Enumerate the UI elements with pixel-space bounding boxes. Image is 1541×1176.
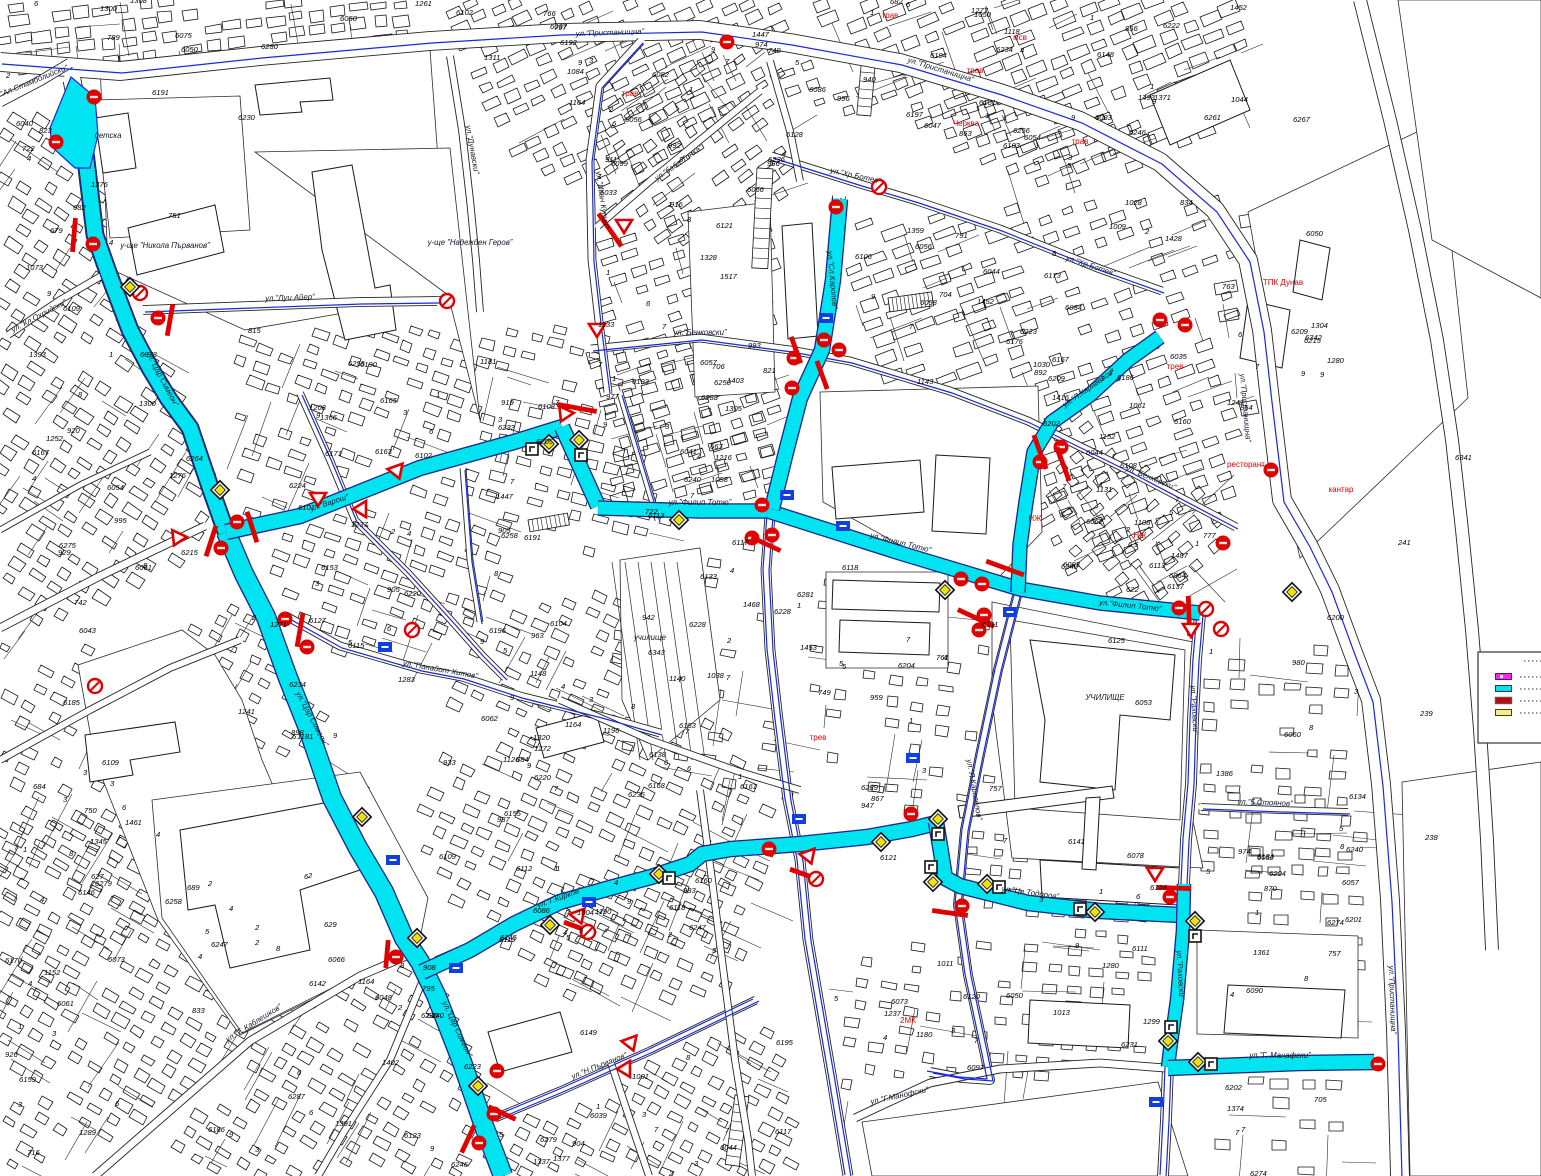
svg-text:6083: 6083 <box>1095 113 1113 122</box>
svg-text:1011: 1011 <box>937 959 953 968</box>
svg-text:6075: 6075 <box>175 31 193 40</box>
svg-text:6082: 6082 <box>652 70 670 79</box>
svg-text:6064: 6064 <box>1169 571 1186 580</box>
svg-text:963: 963 <box>531 631 544 640</box>
svg-text:6084: 6084 <box>1065 303 1082 312</box>
svg-text:4: 4 <box>229 904 233 913</box>
svg-text:1: 1 <box>985 111 989 120</box>
svg-text:977: 977 <box>606 392 619 401</box>
svg-text:6053: 6053 <box>1135 698 1153 707</box>
svg-text:6341: 6341 <box>1455 453 1472 462</box>
svg-text:6173: 6173 <box>1044 271 1062 280</box>
svg-text:6040: 6040 <box>16 119 34 128</box>
svg-text:2: 2 <box>390 527 396 536</box>
svg-text:6037: 6037 <box>550 22 568 31</box>
svg-text:6197: 6197 <box>906 110 924 119</box>
svg-text:863: 863 <box>959 129 972 138</box>
svg-text:679: 679 <box>50 226 63 235</box>
svg-text:трав: трав <box>967 66 984 75</box>
svg-text:1280: 1280 <box>1327 356 1345 365</box>
svg-text:6289: 6289 <box>861 783 879 792</box>
svg-text:1376: 1376 <box>91 180 109 189</box>
svg-text:кантар: кантар <box>1328 485 1354 494</box>
svg-text:1361: 1361 <box>1253 948 1270 957</box>
svg-text:6280: 6280 <box>261 42 279 51</box>
svg-text:трев: трев <box>810 733 827 742</box>
svg-text:6170: 6170 <box>5 956 23 965</box>
svg-text:667: 667 <box>710 442 723 451</box>
svg-text:1001: 1001 <box>632 1072 649 1081</box>
svg-text:622: 622 <box>1126 585 1139 594</box>
svg-text:6202: 6202 <box>1043 419 1061 428</box>
svg-text:6220: 6220 <box>404 589 422 598</box>
svg-text:1447: 1447 <box>752 30 770 39</box>
svg-text:856: 856 <box>1125 24 1138 33</box>
svg-text:2: 2 <box>1144 227 1150 236</box>
svg-text:1: 1 <box>797 601 801 610</box>
svg-text:6054: 6054 <box>1024 133 1041 142</box>
svg-text:905: 905 <box>387 585 400 594</box>
svg-text:4: 4 <box>28 979 32 988</box>
svg-text:6054: 6054 <box>107 483 124 492</box>
svg-text:2: 2 <box>5 71 11 80</box>
svg-text:6234: 6234 <box>289 680 306 689</box>
svg-text:4: 4 <box>614 878 618 887</box>
svg-text:училище: училище <box>633 633 667 642</box>
svg-text:1320: 1320 <box>533 733 551 742</box>
svg-text:6236: 6236 <box>628 790 646 799</box>
svg-text:1: 1 <box>1150 82 1154 91</box>
svg-text:6106: 6106 <box>855 252 873 261</box>
svg-text:705: 705 <box>1314 1095 1327 1104</box>
svg-text:6261: 6261 <box>1204 113 1221 122</box>
svg-text:974: 974 <box>755 40 768 49</box>
svg-text:1: 1 <box>909 716 913 725</box>
svg-text:6186: 6186 <box>208 1125 226 1134</box>
svg-text:749: 749 <box>818 688 831 697</box>
svg-text:ресторант: ресторант <box>1227 460 1265 469</box>
svg-text:1: 1 <box>870 8 874 17</box>
svg-text:6066: 6066 <box>328 955 346 964</box>
svg-text:1252: 1252 <box>46 434 64 443</box>
svg-text:6233: 6233 <box>498 423 516 432</box>
svg-text:1148: 1148 <box>530 669 547 678</box>
svg-text:1013: 1013 <box>1053 1008 1071 1017</box>
svg-text:трав: трав <box>882 11 899 20</box>
svg-text:6048: 6048 <box>375 993 393 1002</box>
svg-text:ул.”Филип Тотю”: ул.”Филип Тотю” <box>668 498 732 507</box>
svg-text:мсв: мсв <box>1013 33 1027 42</box>
svg-text:1028: 1028 <box>1125 198 1143 207</box>
svg-text:1038: 1038 <box>707 671 725 680</box>
svg-text:6186: 6186 <box>1117 373 1135 382</box>
svg-text:1447: 1447 <box>496 492 514 501</box>
svg-text:6224: 6224 <box>289 481 306 490</box>
svg-text:1402: 1402 <box>382 1058 400 1067</box>
svg-text:6160: 6160 <box>1174 417 1192 426</box>
svg-text:722: 722 <box>22 144 35 153</box>
svg-text:716: 716 <box>27 1148 40 1157</box>
svg-text:4: 4 <box>40 895 44 904</box>
svg-text:6047: 6047 <box>924 121 942 130</box>
svg-text:6202: 6202 <box>1225 1083 1243 1092</box>
svg-text:959: 959 <box>870 693 883 702</box>
svg-text:6109: 6109 <box>439 852 457 861</box>
svg-text:1299: 1299 <box>1143 1017 1161 1026</box>
svg-text:трав: трав <box>1072 137 1089 146</box>
svg-text:919: 919 <box>501 398 514 407</box>
svg-text:1237: 1237 <box>884 1009 902 1018</box>
svg-text:6160: 6160 <box>695 876 713 885</box>
svg-text:6128: 6128 <box>786 130 804 139</box>
svg-text:870: 870 <box>1264 884 1277 893</box>
svg-text:4: 4 <box>109 238 113 247</box>
svg-text:1: 1 <box>1255 908 1259 917</box>
svg-text:742: 742 <box>74 598 87 607</box>
svg-text:6146: 6146 <box>78 888 96 897</box>
svg-text:6118: 6118 <box>842 563 859 572</box>
svg-text:2: 2 <box>397 1003 403 1012</box>
svg-text:1289: 1289 <box>79 1128 97 1137</box>
svg-text:6185: 6185 <box>63 698 81 707</box>
svg-text:6056: 6056 <box>625 115 643 124</box>
svg-text:6228: 6228 <box>774 607 792 616</box>
svg-text:6137: 6137 <box>1167 582 1185 591</box>
svg-text:6109: 6109 <box>102 758 120 767</box>
svg-text:6035: 6035 <box>1170 352 1188 361</box>
svg-text:6062: 6062 <box>1086 517 1104 526</box>
svg-text:926: 926 <box>5 1050 18 1059</box>
svg-text:6288: 6288 <box>701 393 719 402</box>
svg-text:4: 4 <box>1230 990 1234 999</box>
svg-text:1371: 1371 <box>1154 93 1171 102</box>
svg-text:6149: 6149 <box>580 1028 598 1037</box>
svg-text:6101: 6101 <box>979 98 996 107</box>
svg-text:6287: 6287 <box>288 1092 306 1101</box>
svg-text:834: 834 <box>1180 198 1193 207</box>
svg-text:6247: 6247 <box>689 923 707 932</box>
svg-text:1345: 1345 <box>90 837 108 846</box>
svg-text:трав: трав <box>622 89 639 98</box>
svg-text:757: 757 <box>989 784 1002 793</box>
svg-text:1061: 1061 <box>1129 401 1146 410</box>
svg-text:867: 867 <box>871 794 884 803</box>
svg-text:2: 2 <box>254 938 260 947</box>
svg-text:6145: 6145 <box>500 933 518 942</box>
svg-text:1058: 1058 <box>711 475 729 484</box>
svg-text:6191: 6191 <box>152 88 169 97</box>
svg-text:1044: 1044 <box>1231 95 1248 104</box>
svg-text:1050: 1050 <box>974 10 992 19</box>
svg-text:6274: 6274 <box>1327 918 1344 927</box>
svg-text:6061: 6061 <box>57 999 74 1008</box>
svg-text:1305: 1305 <box>725 404 743 413</box>
svg-text:6240: 6240 <box>427 1011 445 1020</box>
svg-text:4: 4 <box>782 149 786 158</box>
svg-text:6204: 6204 <box>898 661 915 670</box>
svg-text:6125: 6125 <box>1108 636 1126 645</box>
svg-text:704: 704 <box>939 290 952 299</box>
svg-text:6041: 6041 <box>680 447 697 456</box>
svg-text:6044: 6044 <box>1086 448 1103 457</box>
svg-text:6050: 6050 <box>1006 991 1024 1000</box>
svg-text:1261: 1261 <box>415 0 432 8</box>
svg-text:4: 4 <box>943 653 947 662</box>
svg-text:6103: 6103 <box>1003 141 1021 150</box>
svg-text:6343: 6343 <box>648 648 666 657</box>
svg-text:6258: 6258 <box>165 897 183 906</box>
svg-text:6117: 6117 <box>775 1127 792 1136</box>
svg-text:4: 4 <box>697 452 701 461</box>
svg-text:1: 1 <box>606 268 610 277</box>
svg-text:у-ще ”Никола Първанов”: у-ще ”Никола Първанов” <box>119 241 210 250</box>
svg-text:6279: 6279 <box>95 879 113 888</box>
svg-text:6050: 6050 <box>181 45 199 54</box>
svg-text:6342: 6342 <box>1305 333 1323 342</box>
svg-text:6167: 6167 <box>32 448 50 457</box>
svg-text:6240: 6240 <box>1346 845 1364 854</box>
svg-text:1374: 1374 <box>1227 1104 1244 1113</box>
svg-text:1452: 1452 <box>1230 3 1248 12</box>
svg-text:1: 1 <box>1099 887 1103 896</box>
svg-text:6073: 6073 <box>108 955 126 964</box>
svg-text:789: 789 <box>107 33 120 42</box>
svg-text:749: 749 <box>768 46 781 55</box>
svg-text:6078: 6078 <box>1127 851 1145 860</box>
svg-text:750: 750 <box>84 806 97 815</box>
svg-text:детска: детска <box>95 131 123 140</box>
svg-text:6056: 6056 <box>915 242 933 251</box>
svg-text:6060: 6060 <box>1284 730 1302 739</box>
svg-text:6117: 6117 <box>732 538 749 547</box>
svg-text:6102: 6102 <box>415 451 433 460</box>
svg-text:6102: 6102 <box>456 8 474 17</box>
svg-text:6205: 6205 <box>536 437 554 446</box>
svg-text:6142: 6142 <box>309 979 327 988</box>
svg-text:1461: 1461 <box>125 818 142 827</box>
svg-text:6057: 6057 <box>1342 878 1360 887</box>
svg-text:980: 980 <box>1292 658 1305 667</box>
svg-text:6058: 6058 <box>920 298 938 307</box>
svg-text:942: 942 <box>642 613 655 622</box>
svg-text:1208: 1208 <box>309 403 327 412</box>
svg-text:766: 766 <box>543 9 556 18</box>
svg-text:1073: 1073 <box>26 263 44 272</box>
svg-text:1366: 1366 <box>320 413 338 422</box>
svg-text:ул.”Г. Манафски”: ул.”Г. Манафски” <box>1248 1051 1311 1060</box>
svg-text:4: 4 <box>883 1033 887 1042</box>
svg-text:916: 916 <box>670 200 683 209</box>
svg-text:1: 1 <box>556 864 560 873</box>
svg-text:2: 2 <box>207 879 213 888</box>
svg-text:6052: 6052 <box>1257 853 1275 862</box>
svg-text:974: 974 <box>1238 847 1251 856</box>
svg-text:1300: 1300 <box>100 4 118 13</box>
svg-text:993: 993 <box>748 341 761 350</box>
svg-text:992: 992 <box>668 141 681 150</box>
svg-text:6050: 6050 <box>1306 229 1324 238</box>
svg-text:933: 933 <box>443 758 456 767</box>
svg-text:684: 684 <box>33 782 46 791</box>
svg-text:6223: 6223 <box>464 1062 482 1071</box>
svg-text:6113: 6113 <box>648 511 665 520</box>
svg-text:6163: 6163 <box>375 447 393 456</box>
svg-text:940: 940 <box>863 75 876 84</box>
svg-text:6200: 6200 <box>1327 613 1345 622</box>
svg-text:6062: 6062 <box>481 714 499 723</box>
svg-text:1143: 1143 <box>917 377 934 386</box>
svg-text:6039: 6039 <box>590 1111 608 1120</box>
svg-text:6195: 6195 <box>776 1038 794 1047</box>
svg-text:1: 1 <box>1090 13 1094 22</box>
svg-text:987: 987 <box>497 815 510 824</box>
svg-text:6090: 6090 <box>1246 986 1264 995</box>
svg-text:6230: 6230 <box>238 113 256 122</box>
svg-text:6246: 6246 <box>1129 128 1147 137</box>
svg-text:4: 4 <box>32 474 36 483</box>
svg-text:6201: 6201 <box>1345 915 1362 924</box>
svg-text:1391: 1391 <box>335 1119 352 1128</box>
svg-text:6159: 6159 <box>19 1075 37 1084</box>
svg-text:у-ще ”Надежден Геров”: у-ще ”Надежден Геров” <box>427 238 513 247</box>
svg-text:Черква: Черква <box>953 119 980 128</box>
svg-text:905: 905 <box>498 526 511 535</box>
svg-text:1164: 1164 <box>358 977 374 986</box>
svg-text:2: 2 <box>668 1169 674 1176</box>
svg-text:823: 823 <box>39 126 52 135</box>
svg-text:6153: 6153 <box>679 721 697 730</box>
svg-text:757: 757 <box>1328 949 1341 958</box>
svg-text:6264: 6264 <box>186 454 203 463</box>
svg-text:6275: 6275 <box>59 541 77 550</box>
svg-text:6043: 6043 <box>79 626 97 635</box>
svg-text:1453: 1453 <box>800 643 818 652</box>
svg-text:6240: 6240 <box>684 475 702 484</box>
svg-text:трев: трев <box>1167 362 1184 371</box>
svg-text:1152: 1152 <box>1099 432 1116 441</box>
svg-text:689: 689 <box>187 883 200 892</box>
svg-text:6111: 6111 <box>1132 944 1148 953</box>
svg-text:6223: 6223 <box>1020 327 1038 336</box>
svg-text:1328: 1328 <box>700 253 718 262</box>
svg-text:1216: 1216 <box>715 453 733 462</box>
svg-text:6168: 6168 <box>648 781 666 790</box>
svg-text:1393: 1393 <box>29 350 47 359</box>
svg-text:908: 908 <box>423 963 436 972</box>
svg-text:2МК: 2МК <box>900 1016 916 1025</box>
svg-text:1428: 1428 <box>1165 234 1183 243</box>
svg-text:1: 1 <box>1209 647 1213 656</box>
svg-text:6220: 6220 <box>534 773 552 782</box>
svg-text:УЧИЛИЩЕ: УЧИЛИЩЕ <box>1084 693 1125 702</box>
svg-text:6086: 6086 <box>809 85 827 94</box>
svg-text:4: 4 <box>730 566 734 575</box>
svg-text:2: 2 <box>254 923 260 932</box>
svg-text:1: 1 <box>436 390 440 399</box>
svg-text:6121: 6121 <box>716 221 733 230</box>
svg-text:6246: 6246 <box>451 1160 469 1169</box>
svg-text:6176: 6176 <box>1006 337 1024 346</box>
svg-text:1276: 1276 <box>169 471 187 480</box>
svg-text:6141: 6141 <box>1068 837 1085 846</box>
svg-text:4: 4 <box>156 830 160 839</box>
svg-text:1517: 1517 <box>720 272 738 281</box>
svg-text:6222: 6222 <box>1163 21 1181 30</box>
svg-text:6120: 6120 <box>963 992 981 1001</box>
svg-text:995: 995 <box>114 516 127 525</box>
svg-text:1377: 1377 <box>553 1154 571 1163</box>
svg-text:1337: 1337 <box>533 1157 551 1166</box>
svg-text:238: 238 <box>1424 833 1438 842</box>
svg-text:763: 763 <box>1222 282 1235 291</box>
svg-text:1164: 1164 <box>565 720 581 729</box>
svg-text:6115: 6115 <box>348 641 365 650</box>
svg-text:6171: 6171 <box>325 449 342 458</box>
svg-text:6133: 6133 <box>700 572 718 581</box>
svg-text:6108: 6108 <box>538 402 556 411</box>
svg-text:241: 241 <box>1397 538 1411 547</box>
svg-text:6191: 6191 <box>524 533 541 542</box>
svg-text:1181: 1181 <box>297 732 313 741</box>
svg-text:6228: 6228 <box>689 620 707 629</box>
svg-text:6196: 6196 <box>489 626 507 635</box>
svg-text:983: 983 <box>683 886 696 895</box>
svg-text:1: 1 <box>596 1102 600 1111</box>
svg-text:6267: 6267 <box>1293 115 1311 124</box>
svg-text:1: 1 <box>109 350 113 359</box>
svg-text:6193: 6193 <box>632 377 650 386</box>
svg-text:2: 2 <box>726 636 732 645</box>
svg-text:6167: 6167 <box>1052 355 1070 364</box>
svg-text:1181: 1181 <box>480 357 496 366</box>
svg-text:6057: 6057 <box>700 358 718 367</box>
svg-text:904: 904 <box>572 1139 585 1148</box>
svg-text:6231: 6231 <box>1121 1040 1138 1049</box>
svg-text:996: 996 <box>837 94 850 103</box>
svg-text:1468: 1468 <box>743 600 761 609</box>
svg-text:1: 1 <box>18 1022 22 1031</box>
svg-text:6044: 6044 <box>983 267 1000 276</box>
svg-text:ул.”Луи Айер”: ул.”Луи Айер” <box>264 292 315 303</box>
svg-text:4: 4 <box>561 682 565 691</box>
svg-text:6148: 6148 <box>1097 50 1115 59</box>
svg-text:2: 2 <box>251 613 257 622</box>
svg-text:1280: 1280 <box>1102 961 1120 970</box>
svg-text:1: 1 <box>1195 539 1199 548</box>
svg-text:1308: 1308 <box>130 0 148 5</box>
svg-text:6192: 6192 <box>560 38 578 47</box>
svg-text:6204: 6204 <box>1269 869 1286 878</box>
svg-text:1: 1 <box>612 374 616 383</box>
svg-text:6044: 6044 <box>720 1143 737 1152</box>
svg-text:6123: 6123 <box>404 1131 422 1140</box>
svg-text:6274: 6274 <box>1250 1169 1267 1176</box>
svg-text:6121: 6121 <box>880 853 897 862</box>
svg-text:791: 791 <box>955 231 968 240</box>
svg-text:1108: 1108 <box>1134 518 1151 527</box>
svg-text:1152: 1152 <box>44 968 61 977</box>
svg-text:1180: 1180 <box>916 1030 933 1039</box>
svg-text:682: 682 <box>73 203 86 212</box>
svg-text:682: 682 <box>890 0 903 6</box>
svg-text:6113: 6113 <box>1149 561 1166 570</box>
svg-text:6255: 6255 <box>348 359 366 368</box>
svg-text:6083: 6083 <box>1063 560 1081 569</box>
svg-text:1164: 1164 <box>569 98 585 107</box>
svg-text:1: 1 <box>23 845 27 854</box>
svg-text:920: 920 <box>67 426 80 435</box>
svg-text:1004: 1004 <box>577 908 594 917</box>
